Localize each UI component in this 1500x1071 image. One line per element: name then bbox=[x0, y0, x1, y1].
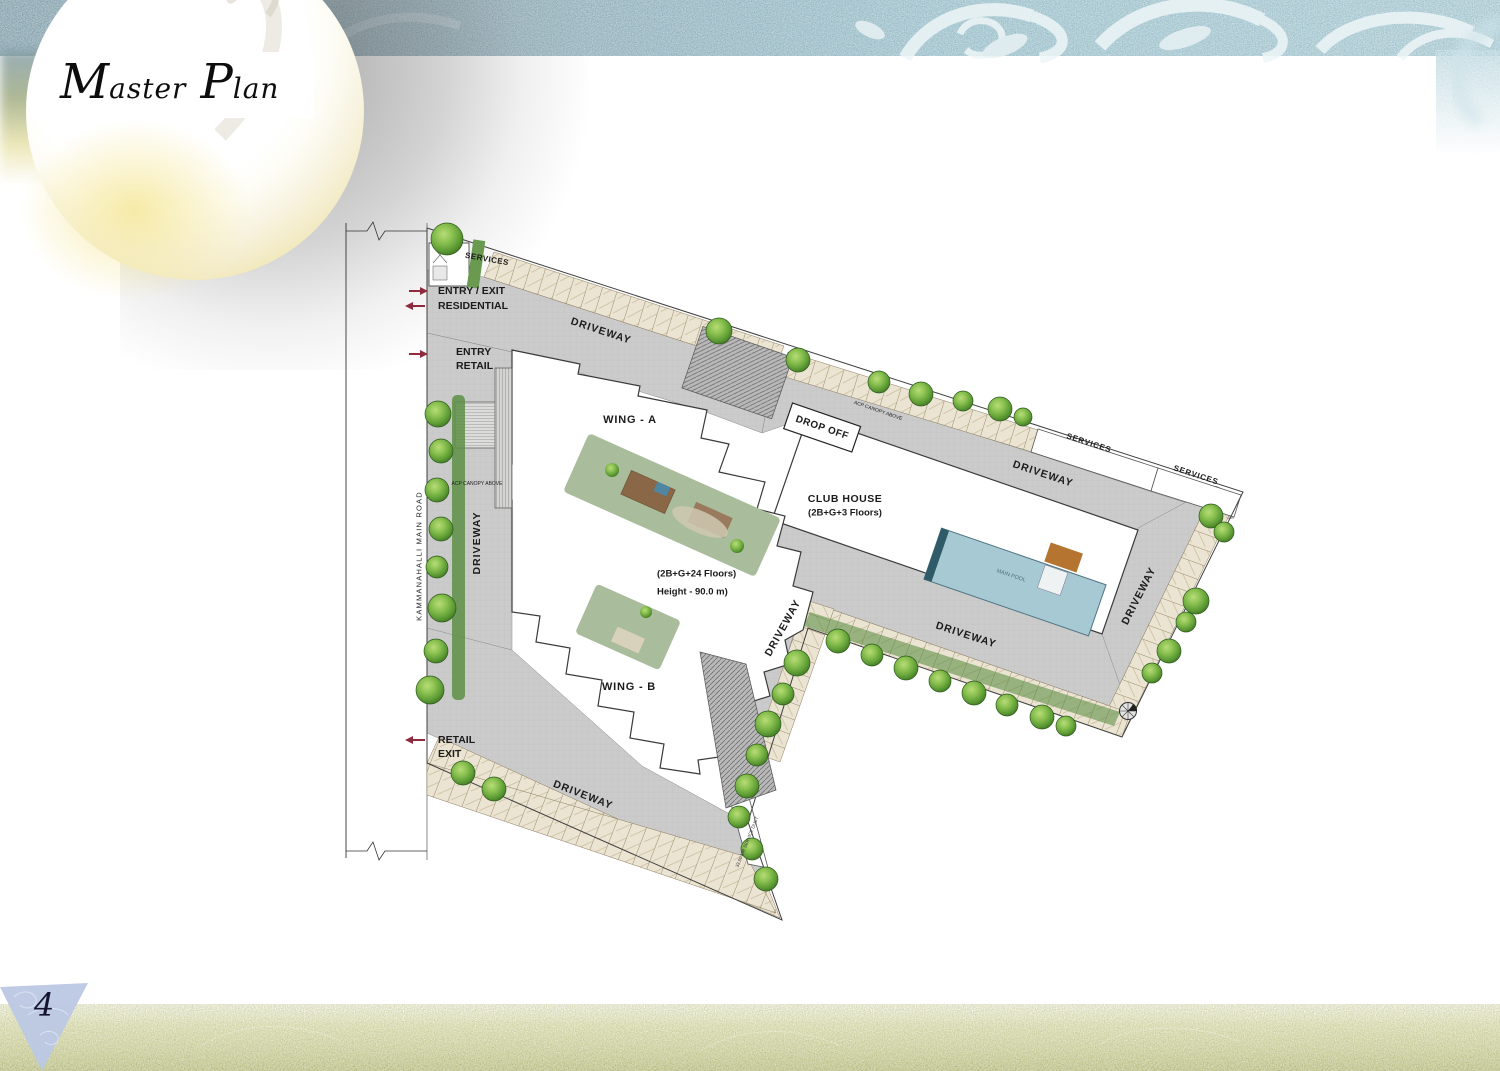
spiral-stair-icon bbox=[1119, 702, 1137, 720]
bottom-decorative-band bbox=[0, 996, 1500, 1071]
site-plan bbox=[330, 215, 1275, 930]
road bbox=[346, 222, 427, 860]
title-cap-p: P bbox=[200, 54, 232, 110]
page-title: MasterPlan bbox=[60, 50, 279, 114]
page-number-triangle bbox=[0, 975, 130, 1071]
title-cap-m: M bbox=[60, 54, 109, 110]
entry-exit-arrows bbox=[405, 287, 428, 744]
title-rest-lan: lan bbox=[233, 72, 280, 105]
brochure-page: MasterPlan bbox=[0, 0, 1500, 1071]
page-number: 4 bbox=[34, 986, 54, 1024]
title-rest-aster: aster bbox=[109, 72, 186, 105]
